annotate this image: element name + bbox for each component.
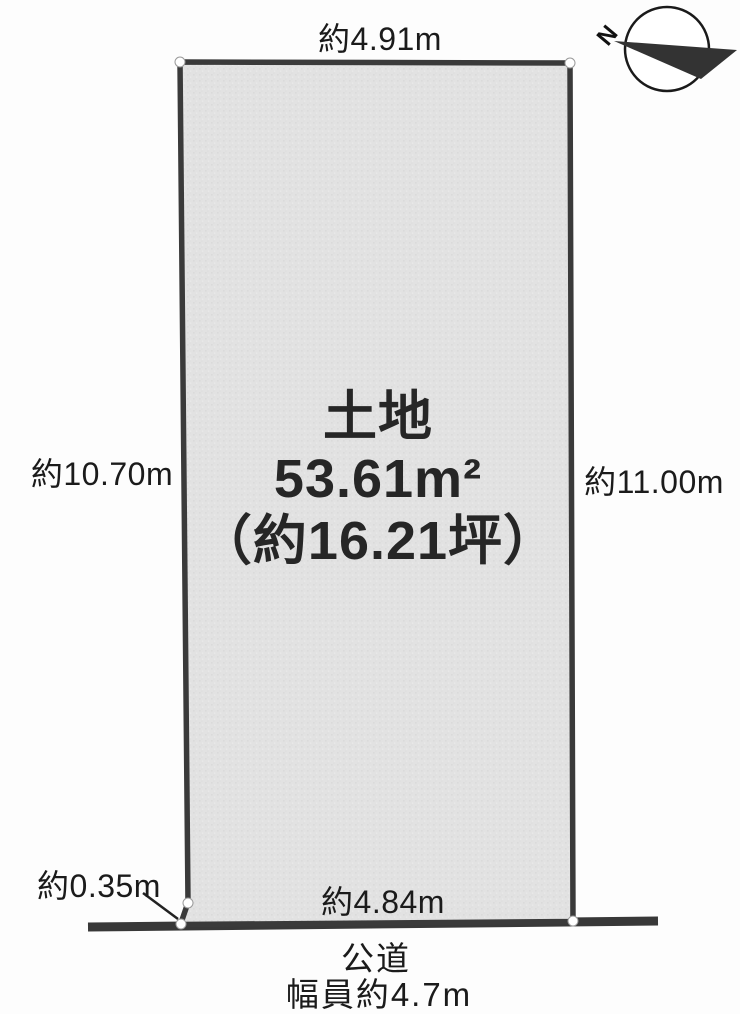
vertex-top-left [175,57,185,67]
land-plot-diagram: N 約4.91m 約10.70m 約11.00m 約4.84m 約0.35m 土… [0,0,740,1014]
road-width-note: 幅員約4.7m [286,968,472,1014]
parcel-area-tsubo: （約16.21坪） [198,510,558,572]
parcel-area-m2: 53.61m² [198,448,558,510]
dimension-top: 約4.91m [318,14,442,60]
vertex-offset [183,898,193,908]
vertex-top-right [565,58,575,68]
dimension-right: 約11.00m [584,457,724,503]
vertex-bottom-left [176,919,186,929]
dimension-offset: 約0.35m [37,861,161,907]
compass-icon [614,7,737,91]
parcel-area-text: 土地 53.61m² （約16.21坪） [198,386,558,572]
dimension-bottom: 約4.84m [321,877,445,923]
vertex-bottom-right [568,916,578,926]
dimension-left: 約10.70m [31,449,173,495]
parcel-title: 土地 [198,386,558,448]
